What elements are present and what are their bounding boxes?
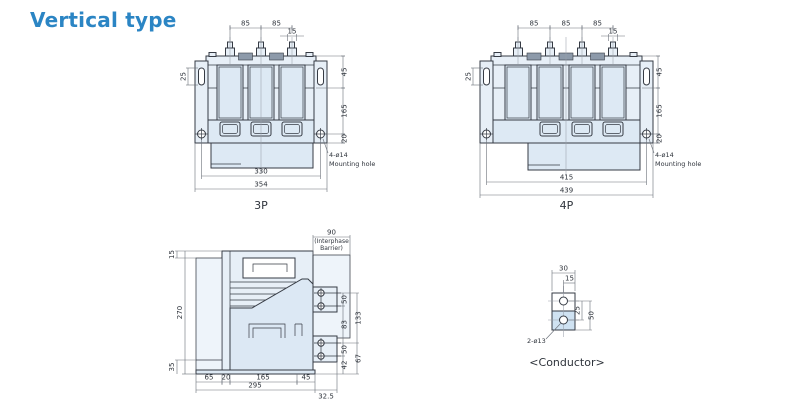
note-3p-hole2: Mounting hole xyxy=(329,160,375,168)
dim-side-bottomstep: 35 xyxy=(168,363,176,372)
note-3p-hole: 4-ø14 xyxy=(329,151,348,159)
caption-4p: 4P xyxy=(560,199,574,212)
dim-3p-holes: 330 xyxy=(254,168,267,176)
dim-side-gap: 83 xyxy=(341,320,349,329)
dim-side-height: 270 xyxy=(176,306,184,319)
page: { "page": { "title": "Vertical type" }, … xyxy=(0,0,799,420)
dim-4p-pitch2: 85 xyxy=(562,20,571,28)
dim-3p-stud: 15 xyxy=(288,28,297,36)
dim-side-topstep: 15 xyxy=(168,250,176,259)
dim-side-pitch-lower: 50 xyxy=(341,345,349,354)
dim-3p-body: 165 xyxy=(341,104,349,117)
side-view: 90 (Interphase Barrier) 15 270 35 65 20 … xyxy=(165,228,400,418)
dim-4p-stud: 15 xyxy=(609,28,618,36)
caption-3p: 3P xyxy=(254,199,268,212)
note-4p-hole2: Mounting hole xyxy=(655,160,701,168)
dim-side-total: 295 xyxy=(248,382,261,390)
conductor-view: 30 15 25 50 2-ø13 <Conductor> xyxy=(515,253,675,383)
dim-4p-overall: 439 xyxy=(560,187,573,195)
dim-4p-pitch1: 85 xyxy=(530,20,539,28)
note-cond-holes: 2-ø13 xyxy=(527,337,546,345)
dim-cond-offset: 15 xyxy=(565,275,574,283)
dim-3p-top: 45 xyxy=(341,68,349,77)
dim-side-b2: 20 xyxy=(222,374,231,382)
note-4p-hole: 4-ø14 xyxy=(655,151,674,159)
dim-side-b4: 45 xyxy=(302,374,311,382)
side-body xyxy=(196,251,350,374)
front-4p-view: 85 85 85 15 25 45 165 20 415 439 4-ø14 M… xyxy=(455,13,723,218)
dim-4p-slot: 25 xyxy=(465,72,473,81)
dim-side-span2: 67 xyxy=(355,354,363,363)
note-barrier-1: (Interphase xyxy=(314,238,349,245)
dim-side-pitch-upper: 50 xyxy=(341,295,349,304)
dim-4p-body: 165 xyxy=(656,104,664,117)
dim-3p-flange: 20 xyxy=(341,134,349,143)
note-barrier-2: Barrier) xyxy=(320,245,343,252)
dim-3p-pitch2: 85 xyxy=(272,20,281,28)
dim-side-span: 133 xyxy=(355,311,363,324)
dim-3p-slot: 25 xyxy=(180,72,188,81)
dim-3p-pitch1: 85 xyxy=(241,20,250,28)
caption-conductor: <Conductor> xyxy=(529,356,604,369)
dim-side-b1: 65 xyxy=(205,374,214,382)
dim-cond-height: 50 xyxy=(588,311,596,320)
dim-4p-holes: 415 xyxy=(560,174,573,182)
dim-side-barrier: 90 xyxy=(327,229,336,237)
dim-cond-width: 30 xyxy=(559,265,568,273)
dim-cond-pitch: 25 xyxy=(574,306,582,315)
front-3p-view: 85 85 15 25 45 165 20 330 354 4-ø14 Moun… xyxy=(178,13,423,218)
dim-4p-flange: 20 xyxy=(656,134,664,143)
dim-3p-overall: 354 xyxy=(254,181,268,189)
dim-side-b3: 165 xyxy=(256,374,269,382)
breaker-3p-body xyxy=(195,37,327,173)
dim-4p-top: 45 xyxy=(656,68,664,77)
dim-4p-pitch3: 85 xyxy=(593,20,602,28)
page-title: Vertical type xyxy=(30,8,176,32)
breaker-4p-body xyxy=(480,37,653,175)
dim-side-offset: 42 xyxy=(341,361,349,370)
dim-side-ext: 32.5 xyxy=(318,393,334,401)
